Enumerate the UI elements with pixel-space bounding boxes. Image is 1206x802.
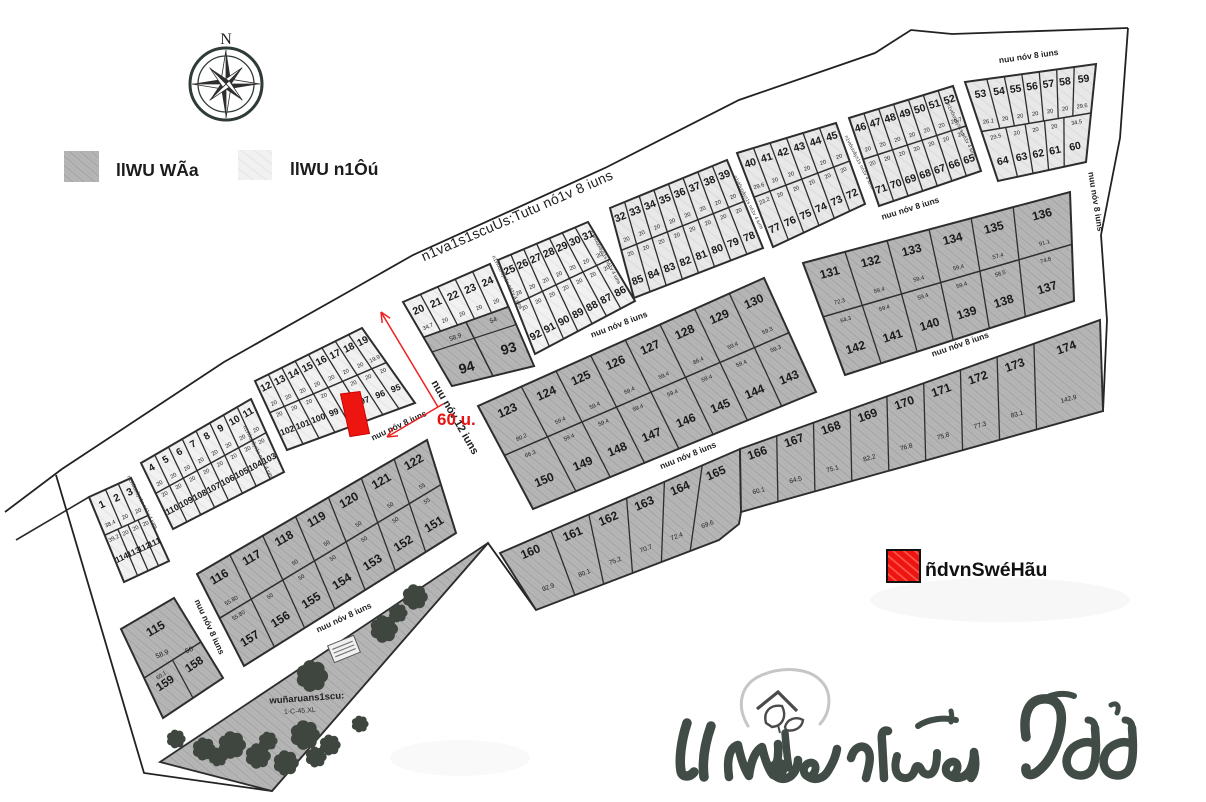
- svg-text:53: 53: [974, 88, 987, 101]
- svg-text:20: 20: [1047, 109, 1054, 116]
- svg-text:59: 59: [1077, 72, 1090, 85]
- svg-text:55: 55: [1009, 82, 1022, 95]
- svg-text:llWU n1Ôú: llWU n1Ôú: [290, 158, 378, 179]
- svg-text:58: 58: [1058, 75, 1071, 88]
- svg-text:20: 20: [1032, 111, 1039, 118]
- svg-text:57: 57: [1042, 78, 1055, 91]
- svg-text:54: 54: [992, 85, 1005, 98]
- svg-text:56: 56: [1025, 80, 1038, 93]
- svg-text:20: 20: [1017, 113, 1024, 120]
- svg-text:60 u.: 60 u.: [437, 410, 476, 429]
- svg-text:llWU WÃa: llWU WÃa: [116, 159, 199, 180]
- svg-text:20: 20: [1002, 116, 1009, 123]
- svg-text:ñdvnSwéHãu: ñdvnSwéHãu: [925, 559, 1047, 581]
- svg-text:N: N: [220, 31, 232, 48]
- svg-text:20: 20: [1062, 106, 1069, 113]
